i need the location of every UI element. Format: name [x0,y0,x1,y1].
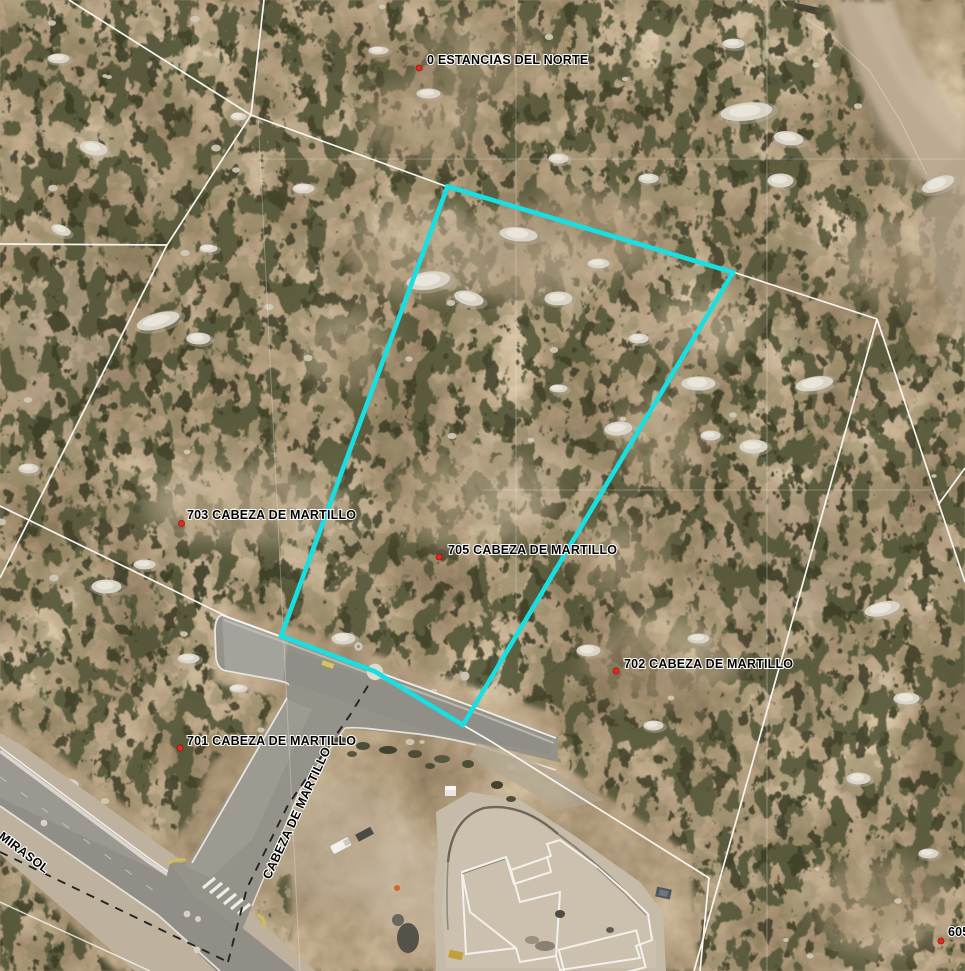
svg-text:605 C: 605 C [948,925,965,939]
svg-text:705 CABEZA DE MARTILLO: 705 CABEZA DE MARTILLO [448,543,617,557]
svg-text:701 CABEZA DE MARTILLO: 701 CABEZA DE MARTILLO [187,734,356,748]
svg-text:702 CABEZA DE MARTILLO: 702 CABEZA DE MARTILLO [624,657,793,671]
svg-text:0 ESTANCIAS DEL NORTE: 0 ESTANCIAS DEL NORTE [427,53,588,67]
svg-text:703 CABEZA DE MARTILLO: 703 CABEZA DE MARTILLO [187,508,356,522]
